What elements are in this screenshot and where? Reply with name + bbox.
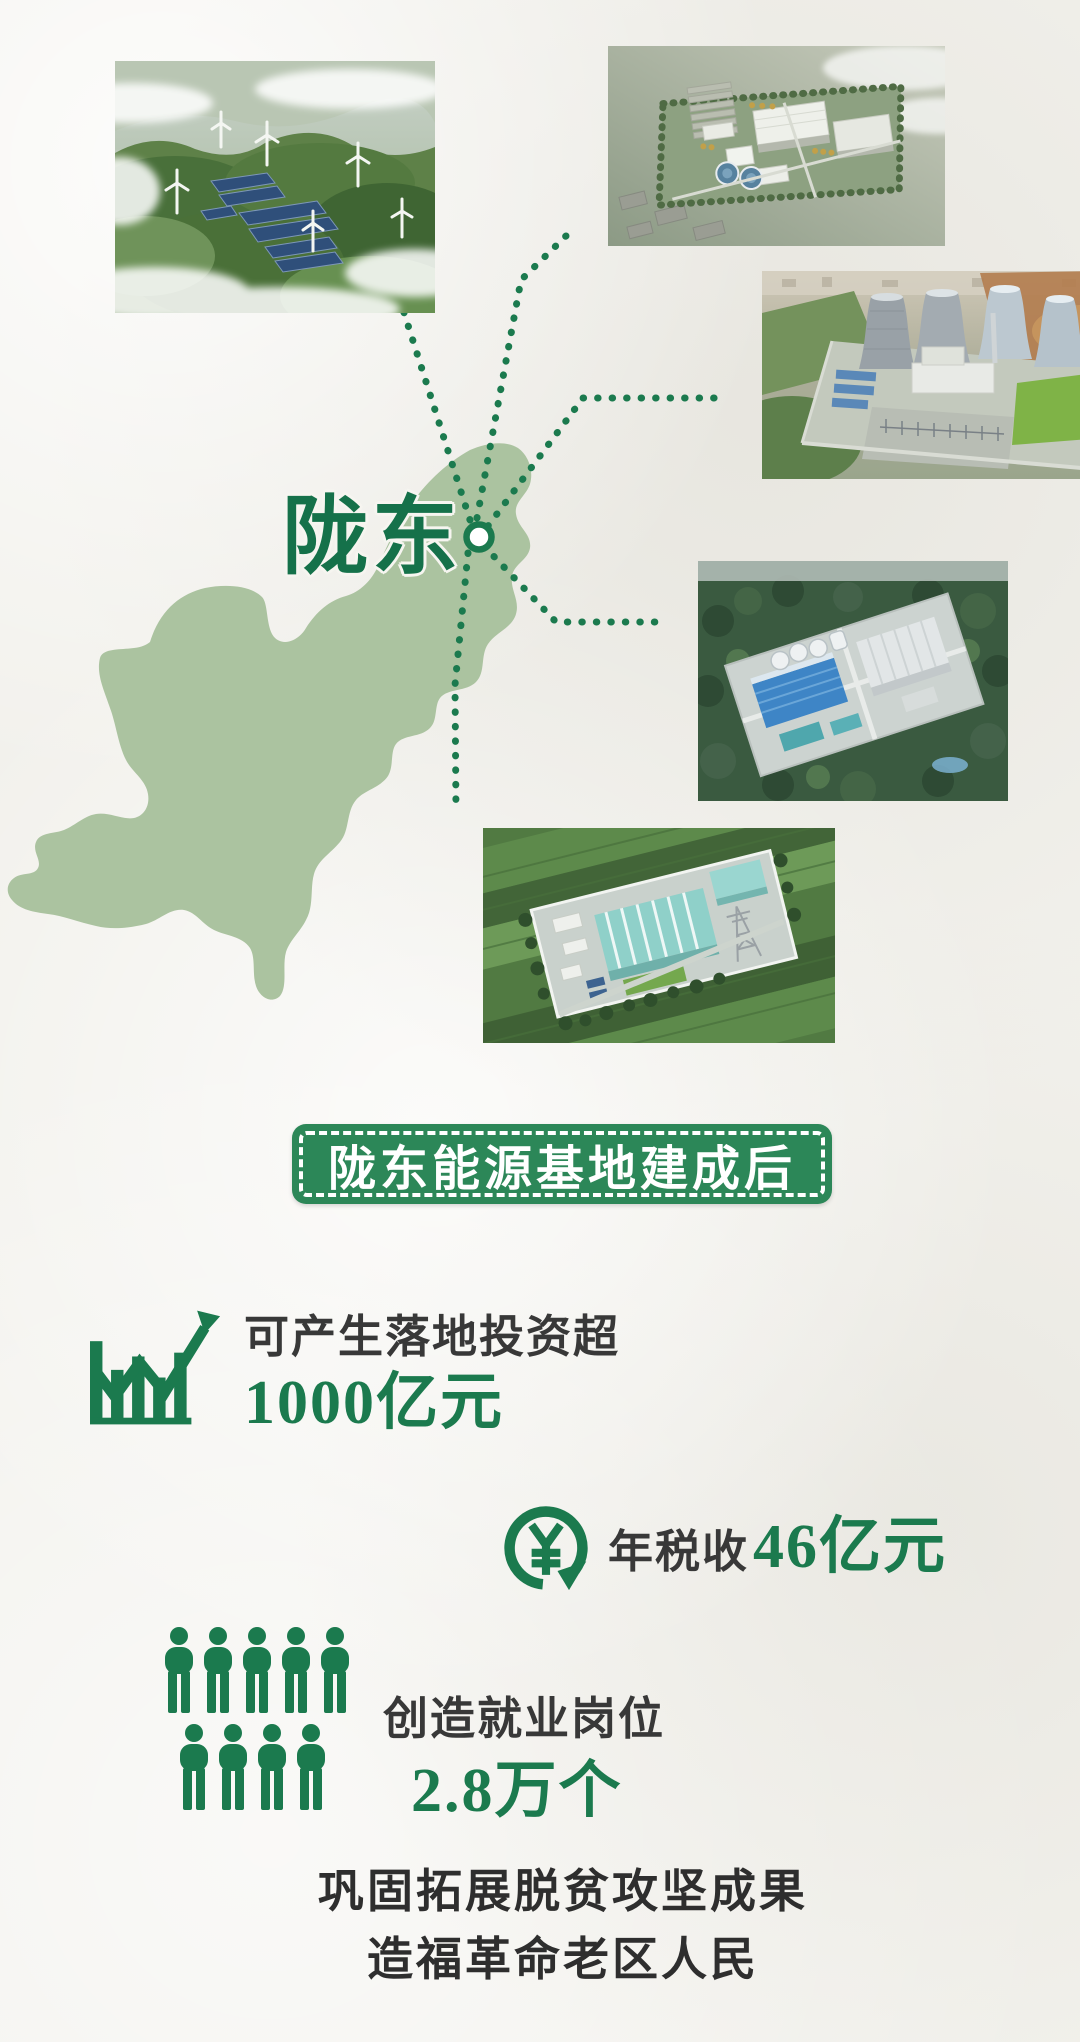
infographic-poster: 陇东 陇东能源基地建成后 可产生落地投资超 1000亿元	[0, 0, 1080, 2042]
footer-slogan: 巩固拓展脱贫攻坚成果 造福革命老区人民	[46, 1868, 1080, 2004]
people-grid-icon	[160, 1627, 356, 1817]
stat-jobs-text: 创造就业岗位 2.8万个	[383, 1682, 665, 1824]
stat-investment-text: 可产生落地投资超 1000亿元	[244, 1300, 620, 1436]
wind-solar-farm-photo	[115, 61, 435, 313]
gas-facility-photo	[698, 561, 1008, 801]
stat-jobs-label: 创造就业岗位	[383, 1682, 665, 1747]
stat-investment: 可产生落地投资超 1000亿元	[90, 1300, 620, 1436]
stat-tax: 年税收 46亿元	[500, 1500, 947, 1596]
region-label: 陇东	[282, 494, 462, 580]
yuan-circulation-icon	[500, 1500, 592, 1596]
stat-investment-label: 可产生落地投资超	[244, 1300, 620, 1365]
stat-tax-text: 年税收 46亿元	[608, 1515, 947, 1580]
footer-line-1: 巩固拓展脱贫攻坚成果	[46, 1868, 1080, 1914]
substation-photo	[483, 828, 835, 1043]
title-banner: 陇东能源基地建成后	[292, 1124, 832, 1204]
coal-power-plant-photo	[762, 271, 1080, 479]
title-banner-text: 陇东能源基地建成后	[328, 1129, 796, 1199]
stat-tax-label: 年税收	[608, 1515, 749, 1580]
industrial-park-photo	[608, 46, 945, 246]
stat-investment-value: 1000亿元	[244, 1371, 620, 1436]
bar-chart-growth-icon	[90, 1308, 222, 1426]
title-banner-dashed-frame: 陇东能源基地建成后	[299, 1131, 825, 1197]
location-marker	[467, 525, 492, 550]
stat-tax-value: 46亿元	[753, 1515, 947, 1580]
footer-line-2: 造福革命老区人民	[46, 1936, 1080, 1982]
stat-jobs-value: 2.8万个	[411, 1759, 665, 1824]
stat-jobs: 创造就业岗位 2.8万个	[160, 1627, 665, 1824]
